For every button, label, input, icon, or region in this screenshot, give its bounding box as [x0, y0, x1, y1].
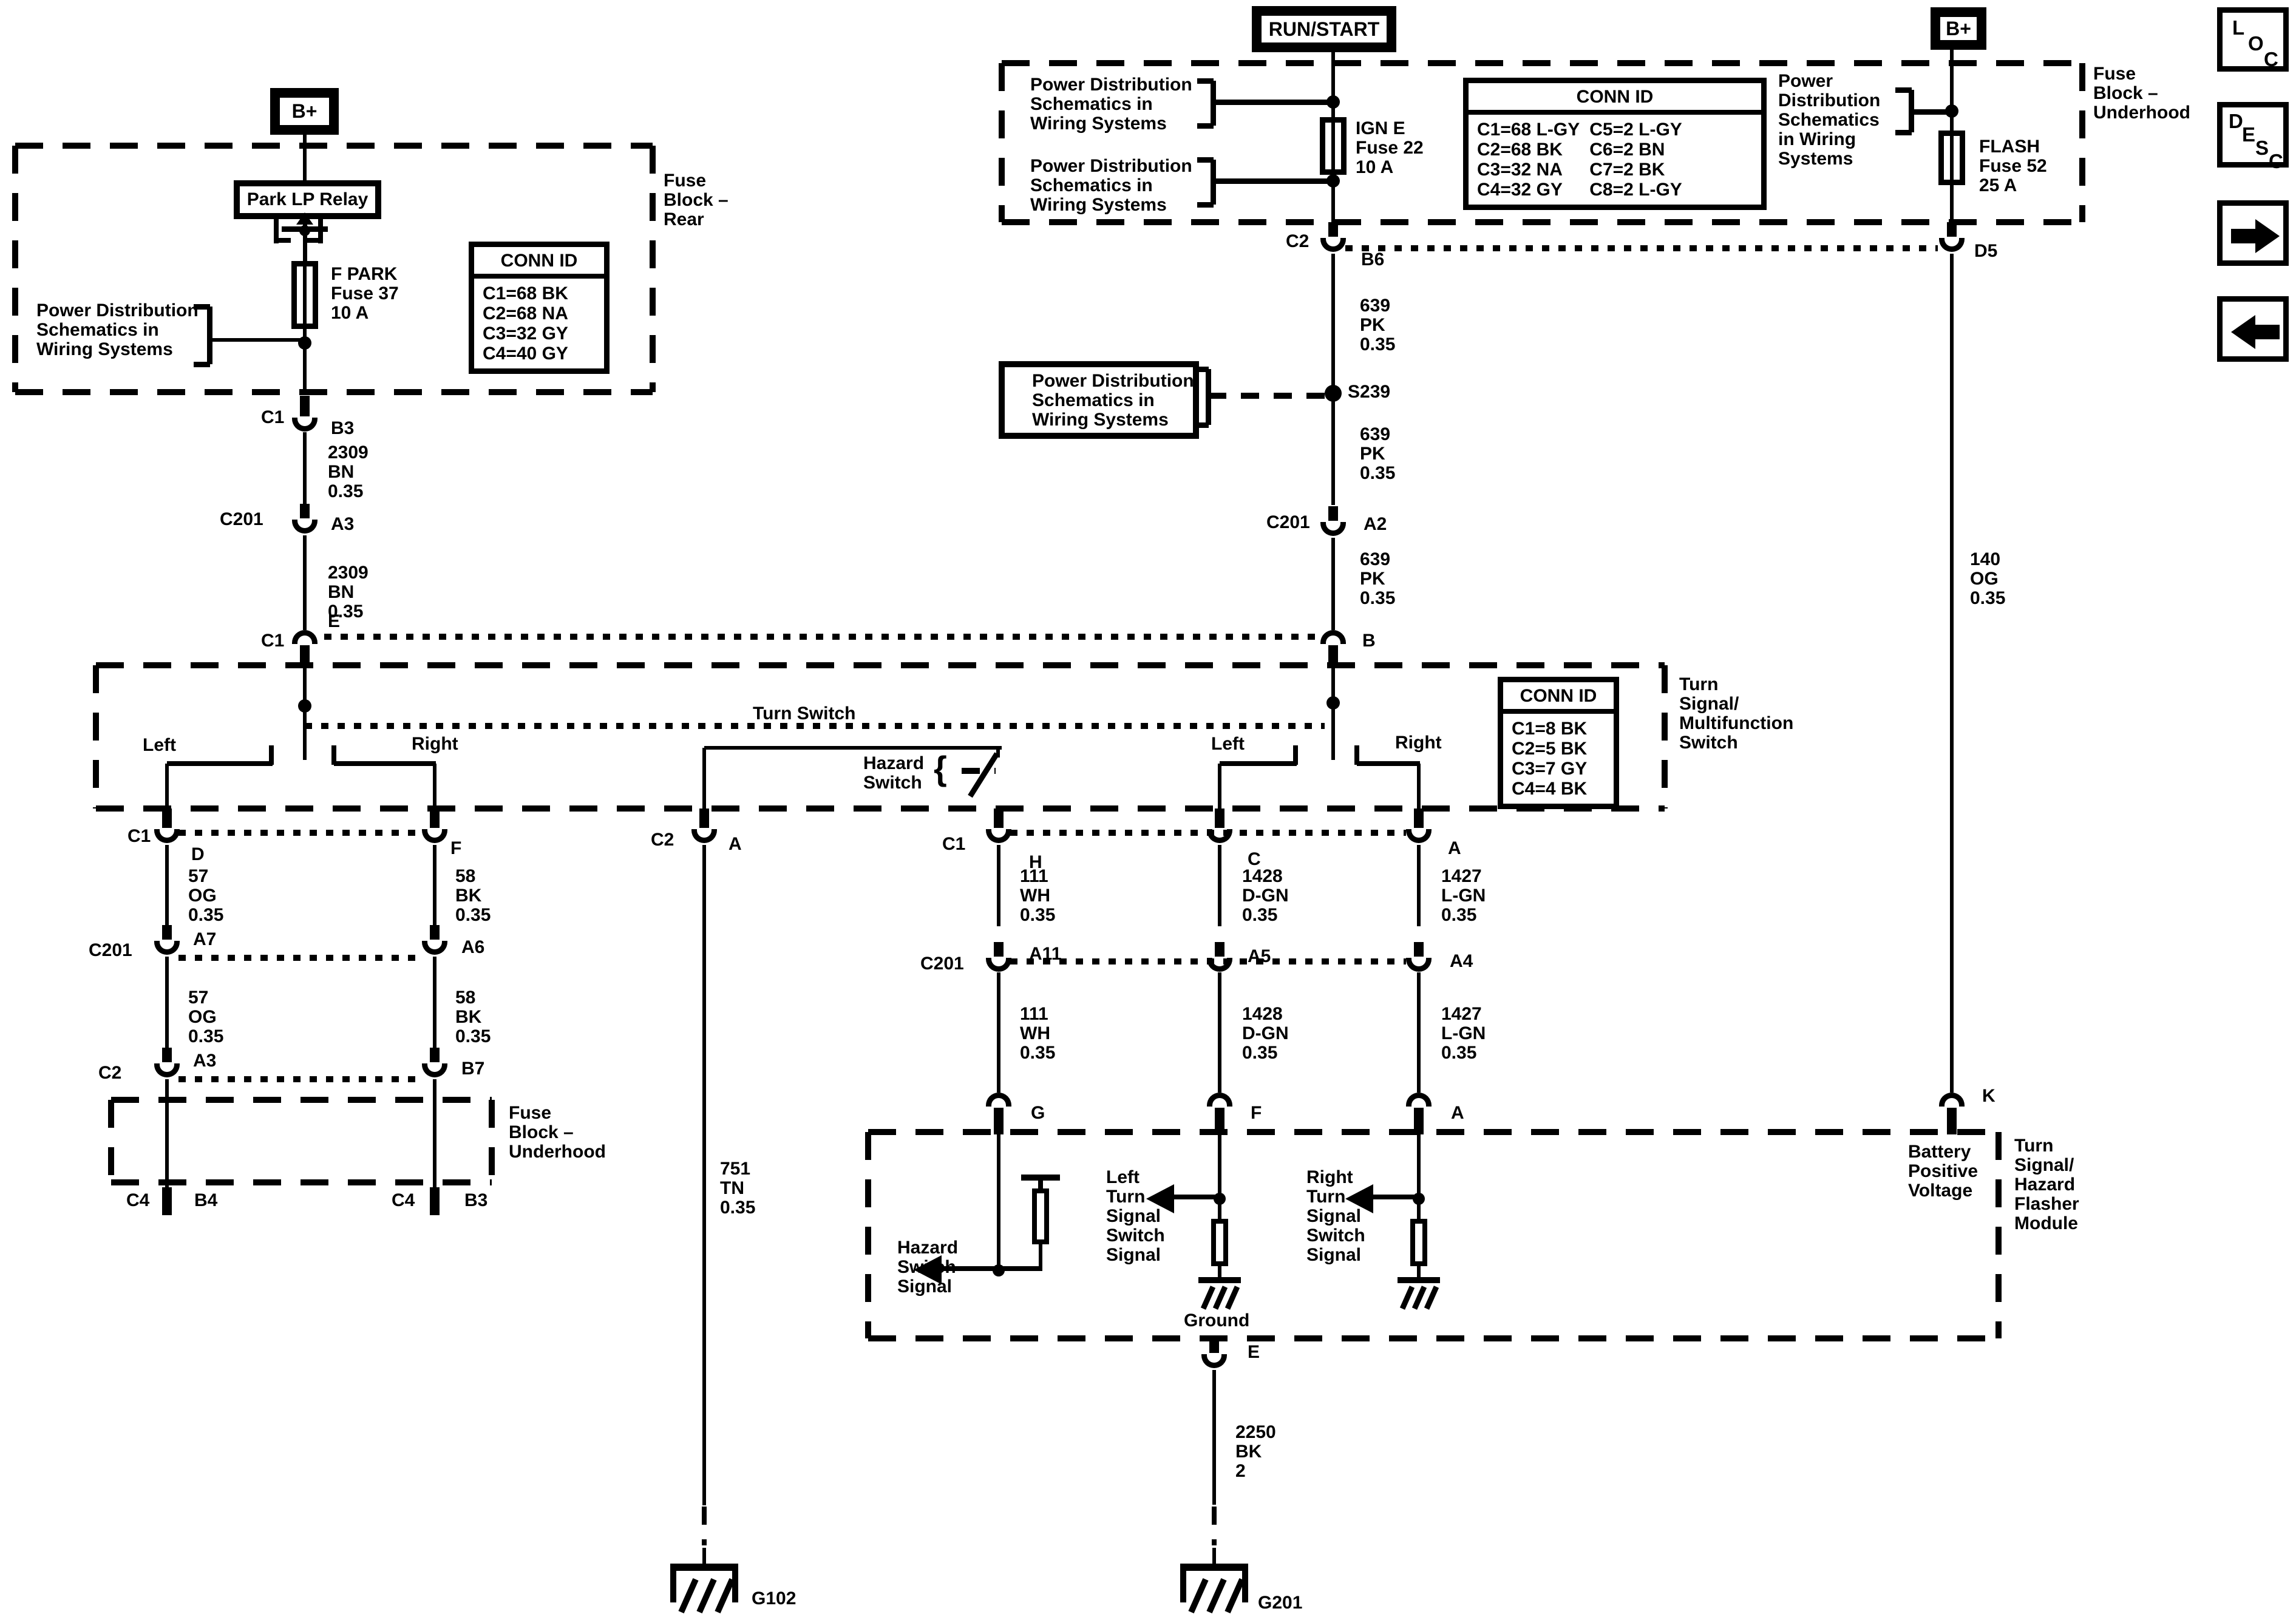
wire-111-wh-1-line-2: 0.35 [1020, 906, 1055, 925]
b-plus-terminal-underhood-label: B+ [1937, 13, 1980, 44]
connector-pin-stub [1414, 808, 1424, 828]
connector-pin-stub [1215, 808, 1224, 828]
wire-solid [303, 432, 307, 504]
pd-schematics-s239-line-0: Power Distribution [1032, 371, 1194, 391]
wire-solid [1197, 123, 1214, 129]
wire-140-og-line-0: 140 [1970, 550, 2005, 569]
right-turn-signal-switch-signal-label: RightTurnSignalSwitchSignal [1306, 1168, 1365, 1265]
wire-solid [1417, 972, 1421, 1093]
fuse-block-underhood-left-label-line-0: Fuse [509, 1103, 606, 1123]
wire-751-tn-line-1: TN [720, 1179, 755, 1198]
fuse-block-underhood-top-label: FuseBlock –Underhood [2093, 64, 2190, 123]
conn-c201-a2-left: C201 [1266, 513, 1310, 532]
signal-direction-arrow-icon [1345, 1184, 1373, 1213]
wire-58-bk-2: 58BK0.35 [455, 988, 491, 1046]
wire-58-bk-2-line-0: 58 [455, 988, 491, 1008]
connector-cup [292, 418, 318, 432]
connector-cup [1406, 829, 1432, 843]
fuse-block-underhood-left-label: FuseBlock –Underhood [509, 1103, 606, 1162]
wire-1428-dgn-1: 1428D-GN0.35 [1242, 867, 1289, 925]
fuse-block-rear-label-line-2: Rear [664, 210, 729, 229]
connector-dome [1939, 1093, 1965, 1107]
splice-s239: S239 [1348, 382, 1390, 402]
connector-pin-stub [994, 808, 1004, 828]
wire-solid [1218, 972, 1221, 1093]
fuse-block-underhood-left-label-line-1: Block – [509, 1123, 606, 1142]
wire-111-wh-2-line-1: WH [1020, 1024, 1055, 1043]
wire-1427-lgn-1-line-1: L-GN [1441, 886, 1486, 906]
conn-f-module: F [1251, 1103, 1262, 1123]
wire-751-tn-line-0: 751 [720, 1159, 755, 1179]
wire-2309-bn-2-line-1: BN [328, 583, 369, 602]
hazard-detent-symbol: { [934, 751, 947, 785]
wire-solid [1331, 538, 1335, 630]
turn-signal-hazard-flasher-module-label-line-2: Hazard [2014, 1175, 2079, 1195]
turn-signal-multifunction-switch-label-line-0: Turn [1679, 675, 1793, 694]
hazard-switch-label-line-1: Switch [863, 773, 924, 793]
wire-2309-bn-1-line-2: 0.35 [328, 482, 369, 501]
conn-id-table-fuse-block-underhood: CONN IDC1=68 L-GYC2=68 BKC3=32 NAC4=32 G… [1463, 78, 1767, 210]
wire-58-bk-1-line-2: 0.35 [455, 906, 491, 925]
wire-solid [165, 845, 169, 926]
conn-id-table-turn-switch: CONN IDC1=8 BKC2=5 BKC3=7 GYC4=4 BK [1498, 677, 1619, 809]
connector-pin-stub [300, 645, 310, 667]
conn-c1-d-right: D [191, 845, 205, 864]
wire-751-tn: 751TN0.35 [720, 1159, 755, 1218]
wire-solid [1331, 666, 1335, 760]
desc-button-letter: E [2242, 123, 2255, 146]
relay-pin-arrow-icon [296, 212, 313, 225]
connector-pin-stub [300, 504, 310, 518]
wire-57-og-1-line-1: OG [188, 886, 223, 906]
fuse-block-underhood-top-label-line-2: Underhood [2093, 103, 2190, 123]
wire-solid [433, 845, 436, 926]
ground-g201-label: G201 [1258, 1593, 1302, 1613]
conn-id-row: C4=40 GY [483, 344, 568, 364]
pd-schematics-rear-line-1: Schematics in [36, 320, 199, 340]
wire-break-dashed [1212, 1507, 1217, 1545]
flash-fuse-label: FLASHFuse 5225 A [1979, 137, 2047, 195]
conn-c: C [1248, 850, 1261, 869]
wire-solid [303, 535, 307, 630]
battery-positive-voltage-label-line-1: Positive [1908, 1162, 1978, 1181]
desc-button[interactable]: DESC [2217, 102, 2289, 168]
wire-solid [307, 238, 322, 243]
conn-id-row: C1=8 BK [1512, 719, 1587, 739]
connector-pin-stub [1328, 645, 1338, 667]
link-dotted [178, 1076, 424, 1082]
wire-end-stub [430, 1187, 440, 1215]
wire-solid [433, 1079, 436, 1188]
fuse-block-underhood-left-outline-top [111, 1097, 492, 1103]
pd-schematics-top-2: Power DistributionSchematics inWiring Sy… [1030, 157, 1192, 215]
conn-c201-a7-left: C201 [89, 941, 132, 960]
wire-2309-bn-1-line-0: 2309 [328, 443, 369, 463]
conn-id-row: C8=2 L-GY [1589, 180, 1682, 200]
wire-2309-bn-2-line-0: 2309 [328, 563, 369, 583]
wire-solid [997, 1134, 1000, 1271]
connector-pin-stub [994, 1108, 1004, 1134]
junction-dot [1325, 385, 1342, 402]
fuse-block-rear-outline-left [12, 146, 18, 392]
wire-solid [1417, 1134, 1421, 1220]
connector-cup [1201, 1354, 1227, 1368]
connector-pin-stub [300, 396, 310, 416]
wire-751-tn-line-2: 0.35 [720, 1198, 755, 1218]
wire-639-pk-2-line-1: PK [1360, 444, 1395, 464]
wire-end-stub [162, 1187, 172, 1215]
conn-c2-b6-left: C2 [1286, 232, 1309, 251]
pd-schematics-rear-line-2: Wiring Systems [36, 340, 199, 359]
flash-fuse-element [1950, 131, 1954, 185]
wire-solid [1197, 202, 1214, 208]
f-park-fuse-element [303, 261, 307, 329]
connector-cup [986, 958, 1011, 972]
hazard-switch-label-line-0: Hazard [863, 754, 924, 773]
pd-schematics-top-1: Power DistributionSchematics inWiring Sy… [1030, 75, 1192, 134]
left-turn-signal-switch-signal-label-line-3: Switch [1106, 1226, 1165, 1246]
fuse-block-underhood-top-label-line-1: Block – [2093, 84, 2190, 103]
junction-dot [1326, 174, 1340, 188]
desc-button-letter: C [2269, 150, 2283, 173]
conn-id-row: C6=2 BN [1589, 140, 1682, 160]
connector-pin-stub [1328, 506, 1338, 521]
turn-signal-hazard-flasher-module-outline-right [1995, 1132, 2002, 1338]
connector-cup [691, 829, 717, 843]
wire-solid [1331, 254, 1335, 505]
pd-schematics-s239: Power DistributionSchematics inWiring Sy… [1032, 371, 1194, 430]
connector-cup [292, 520, 318, 534]
wire-solid [276, 238, 291, 243]
conn-f: F [450, 839, 461, 858]
wire-solid [1213, 178, 1333, 184]
loc-button-letter: C [2264, 48, 2278, 71]
wire-solid [1213, 100, 1333, 105]
turn-signal-multifunction-switch-label: TurnSignal/MultifunctionSwitch [1679, 675, 1793, 753]
conn-a-switch: A [1448, 839, 1461, 858]
loc-button-letter: O [2248, 32, 2264, 55]
conn-c4-b3-right: B3 [464, 1191, 487, 1210]
wire-solid [1218, 845, 1221, 926]
link-dotted [324, 634, 1319, 640]
wire-solid [1950, 67, 1954, 132]
turn-signal-multifunction-switch-outline-top [96, 662, 1665, 668]
conn-c2-a3-right: A3 [193, 1051, 216, 1071]
f-park-fuse-label-line-2: 10 A [331, 303, 399, 323]
loc-button[interactable]: LOC [2217, 7, 2289, 72]
desc-button-letter: D [2229, 110, 2243, 133]
conn-id-row: C7=2 BK [1589, 160, 1682, 180]
wire-639-pk-1-line-0: 639 [1360, 296, 1395, 316]
conn-b: B [1362, 631, 1376, 651]
wire-solid [1895, 87, 1912, 93]
conn-id-row: C3=7 GY [1512, 759, 1587, 779]
wire-solid [194, 362, 210, 367]
wire-solid [1895, 130, 1912, 135]
pd-schematics-right-line-2: Schematics [1778, 110, 1880, 130]
wire-solid [1212, 1370, 1216, 1505]
wire-1428-dgn-2-line-1: D-GN [1242, 1024, 1289, 1043]
left-arrow-icon [2231, 315, 2280, 349]
ign-e-fuse-label-line-2: 10 A [1356, 158, 1424, 177]
connector-pin-stub [1215, 1108, 1224, 1134]
left-turn-signal-switch-signal-label: LeftTurnSignalSwitchSignal [1106, 1168, 1165, 1265]
left-turn-signal-switch-signal-label-line-4: Signal [1106, 1246, 1165, 1265]
wire-solid [702, 845, 706, 1505]
wire-1428-dgn-1-line-2: 0.35 [1242, 906, 1289, 925]
fuse-block-underhood-top-outline-bottom [1002, 219, 2082, 225]
wire-solid [1211, 81, 1216, 126]
pd-schematics-right-line-3: in Wiring [1778, 130, 1880, 149]
wire-639-pk-2-line-2: 0.35 [1360, 464, 1395, 483]
link-dotted [1345, 245, 1938, 251]
junction-dot [299, 225, 310, 236]
wire-solid [1417, 845, 1421, 926]
wire-1428-dgn-1-line-1: D-GN [1242, 886, 1289, 906]
conn-id-row: C2=68 NA [483, 303, 568, 324]
wire-solid [1417, 764, 1421, 811]
switch-right-label-1: Right [412, 734, 458, 754]
conn-c1-b3-left: C1 [261, 408, 284, 427]
wire-58-bk-1-line-0: 58 [455, 867, 491, 886]
connector-pin-stub [1947, 1108, 1957, 1134]
pd-schematics-right-line-1: Distribution [1778, 91, 1880, 110]
wire-1428-dgn-1-line-0: 1428 [1242, 867, 1289, 886]
wire-1427-lgn-1-line-0: 1427 [1441, 867, 1486, 886]
connector-cup [422, 1063, 447, 1077]
fuse-block-rear-label: FuseBlock –Rear [664, 171, 729, 229]
conn-id-table-fuse-block-underhood-col-0: C1=68 L-GYC2=68 BKC3=32 NAC4=32 GY [1472, 120, 1584, 200]
connector-pin-stub [162, 925, 172, 940]
wire-57-og-2: 57OG0.35 [188, 988, 223, 1046]
wire-solid [207, 307, 212, 364]
pd-schematics-rear-line-0: Power Distribution [36, 301, 199, 320]
connector-cup [154, 1063, 180, 1077]
connector-dome [986, 1093, 1011, 1107]
turn-signal-hazard-flasher-module-label-line-4: Module [2014, 1214, 2079, 1233]
pd-schematics-right-line-4: Systems [1778, 149, 1880, 169]
fuse-block-underhood-left-outline-bottom [111, 1179, 492, 1185]
pd-schematics-rear: Power DistributionSchematics inWiring Sy… [36, 301, 199, 359]
connector-pin-stub [1209, 1338, 1219, 1353]
conn-id-table-turn-switch-header: CONN ID [1503, 682, 1614, 714]
wire-111-wh-2-line-2: 0.35 [1020, 1043, 1055, 1063]
wire-solid [209, 338, 305, 342]
conn-c2-a-left: C2 [651, 830, 674, 850]
prev-page-button[interactable] [2217, 296, 2289, 362]
wire-2250-bk-line-2: 2 [1235, 1462, 1276, 1481]
wire-1427-lgn-1-line-2: 0.35 [1441, 906, 1486, 925]
wire-2309-bn-1: 2309BN0.35 [328, 443, 369, 501]
conn-a-module: A [1451, 1103, 1464, 1123]
connector-cup [422, 829, 447, 843]
turn-signal-hazard-flasher-module-label-line-1: Signal/ [2014, 1156, 2079, 1175]
turn-signal-multifunction-switch-label-line-3: Switch [1679, 733, 1793, 753]
wire-solid [1357, 761, 1420, 766]
fuse-block-underhood-top-outline-right [2079, 63, 2085, 222]
fuse-block-underhood-left-outline-left [108, 1100, 114, 1182]
pd-schematics-s239-line-1: Schematics in [1032, 391, 1194, 410]
loc-button-letter: L [2232, 16, 2244, 39]
right-arrow-icon [2231, 219, 2280, 253]
turn-signal-multifunction-switch-outline-right [1662, 665, 1668, 808]
conn-id-row: C1=68 L-GY [1477, 120, 1580, 140]
wire-1427-lgn-1: 1427L-GN0.35 [1441, 867, 1486, 925]
conn-g: G [1031, 1103, 1045, 1123]
turn-signal-multifunction-switch-outline-bottom [96, 805, 1665, 812]
junction-dot [1326, 95, 1340, 109]
junction-dot [1413, 1193, 1425, 1205]
conn-c1-b3-right: B3 [331, 419, 354, 438]
wire-58-bk-1: 58BK0.35 [455, 867, 491, 925]
wire-58-bk-2-line-2: 0.35 [455, 1027, 491, 1046]
fuse-block-underhood-top-outline-left [999, 63, 1005, 222]
connector-pin-stub [162, 1048, 172, 1062]
wire-break-dashed [702, 1507, 707, 1545]
conn-id-table-fuse-block-underhood-col-1: C5=2 L-GYC6=2 BNC7=2 BKC8=2 L-GY [1584, 120, 1687, 200]
conn-a6: A6 [461, 938, 484, 957]
fuse-block-rear-label-line-0: Fuse [664, 171, 729, 191]
wire-solid [1211, 160, 1216, 205]
conn-id-row: C2=5 BK [1512, 739, 1587, 759]
battery-positive-voltage-label-line-2: Voltage [1908, 1181, 1978, 1201]
conn-id-table-fuse-block-underhood-header: CONN ID [1469, 83, 1761, 115]
wire-solid [997, 972, 1000, 1093]
conn-c4-b3-left: C4 [392, 1191, 415, 1210]
hazard-switch-label: HazardSwitch [863, 754, 924, 793]
f-park-fuse-label: F PARKFuse 3710 A [331, 265, 399, 323]
wire-1427-lgn-2-line-0: 1427 [1441, 1005, 1486, 1024]
pd-schematics-top-2-line-1: Schematics in [1030, 176, 1192, 195]
ign-e-fuse-element [1331, 117, 1335, 175]
link-dotted [178, 830, 424, 836]
ign-e-fuse-label-line-1: Fuse 22 [1356, 138, 1424, 158]
wire-639-pk-3-line-2: 0.35 [1360, 589, 1395, 608]
wire-140-og: 140OG0.35 [1970, 550, 2005, 608]
conn-id-table-fuse-block-rear-col-0: C1=68 BKC2=68 NAC3=32 GYC4=40 GY [478, 283, 573, 364]
link-dotted [305, 723, 1325, 729]
connector-cup [986, 829, 1011, 843]
wire-solid [303, 666, 307, 760]
wire-111-wh-1-line-1: WH [1020, 886, 1055, 906]
connector-pin-stub [699, 808, 709, 828]
connector-cup [1939, 238, 1965, 252]
wire-solid [165, 764, 169, 810]
wire-solid [702, 748, 706, 810]
pd-schematics-top-2-line-0: Power Distribution [1030, 157, 1192, 176]
conn-a5: A5 [1248, 947, 1271, 966]
wire-57-og-1: 57OG0.35 [188, 867, 223, 925]
fuse-block-rear-outline-right [650, 146, 656, 392]
connector-cup [1320, 522, 1346, 536]
run-start-terminal-label: RUN/START [1258, 12, 1390, 46]
wire-solid [334, 761, 436, 766]
next-page-button[interactable] [2217, 200, 2289, 266]
ign-e-fuse-label-line-0: IGN E [1356, 119, 1424, 138]
wire-1427-lgn-2: 1427L-GN0.35 [1441, 1005, 1486, 1063]
connector-cup [1207, 958, 1232, 972]
fuse-block-rear-label-line-1: Block – [664, 191, 729, 210]
turn-signal-hazard-flasher-module-label-line-0: Turn [2014, 1136, 2079, 1156]
conn-c4-b4-left: C4 [126, 1191, 149, 1210]
turn-signal-multifunction-switch-label-line-1: Signal/ [1679, 694, 1793, 714]
pd-schematics-s239-line-2: Wiring Systems [1032, 410, 1194, 430]
right-turn-resistor [1410, 1219, 1427, 1266]
conn-c201-a3-left: C201 [220, 510, 263, 529]
conn-c201-a3-right: A3 [331, 515, 354, 534]
wire-57-og-1-line-2: 0.35 [188, 906, 223, 925]
wire-639-pk-1-line-2: 0.35 [1360, 335, 1395, 354]
wire-58-bk-1-line-1: BK [455, 886, 491, 906]
switch-right-label-2: Right [1395, 733, 1442, 753]
wire-solid [702, 1548, 706, 1565]
fuse-block-rear-outline-top [15, 143, 653, 149]
ign-e-fuse-label: IGN EFuse 2210 A [1356, 119, 1424, 177]
wire-2309-bn-1-line-1: BN [328, 463, 369, 482]
connector-pin-stub [1947, 222, 1957, 237]
wire-solid [167, 761, 273, 766]
connector-cup [154, 941, 180, 955]
wire-111-wh-2: 111WH0.35 [1020, 1005, 1055, 1063]
junction-dot [298, 699, 311, 713]
run-start-terminal: RUN/START [1252, 6, 1396, 52]
switch-left-label-2: Left [1211, 734, 1245, 754]
pd-schematics-top-2-line-2: Wiring Systems [1030, 195, 1192, 215]
wire-1427-lgn-2-line-2: 0.35 [1441, 1043, 1486, 1063]
flash-fuse-label-line-0: FLASH [1979, 137, 2047, 157]
b-plus-terminal-rear: B+ [270, 88, 339, 135]
wire-solid [1909, 90, 1914, 132]
wire-1427-lgn-2-line-1: L-GN [1441, 1024, 1486, 1043]
conn-id-row: C5=2 L-GY [1589, 120, 1682, 140]
left-turn-resistor [1211, 1219, 1228, 1266]
wire-solid [433, 764, 436, 810]
wire-solid [997, 845, 1000, 926]
connector-dome [1207, 1093, 1232, 1107]
wire-solid [704, 746, 1002, 750]
wire-solid [1197, 78, 1214, 84]
connector-dome [1406, 1093, 1432, 1107]
fuse-block-underhood-top-outline-top [1002, 60, 2082, 66]
conn-id-table-fuse-block-rear: CONN IDC1=68 BKC2=68 NAC3=32 GYC4=40 GY [469, 242, 610, 374]
wire-1428-dgn-2-line-0: 1428 [1242, 1005, 1289, 1024]
wire-solid [433, 957, 436, 1048]
turn-signal-hazard-flasher-module-label: TurnSignal/HazardFlasherModule [2014, 1136, 2079, 1233]
conn-c1-e-left: C1 [261, 631, 284, 651]
conn-b7: B7 [461, 1059, 484, 1079]
connector-pin-stub [430, 925, 440, 940]
wire-solid [1197, 157, 1214, 163]
link-dotted [178, 955, 424, 961]
wire-solid [1331, 63, 1335, 118]
junction-dot [993, 1264, 1005, 1276]
battery-positive-voltage-label: BatteryPositiveVoltage [1908, 1142, 1978, 1201]
right-turn-signal-switch-signal-label-line-4: Signal [1306, 1246, 1365, 1265]
conn-c2-a3-left: C2 [98, 1063, 121, 1083]
conn-id-row: C4=32 GY [1477, 180, 1580, 200]
wire-639-pk-3-line-0: 639 [1360, 550, 1395, 569]
fuse-block-underhood-left-outline-right [489, 1100, 495, 1182]
conn-c1-h-right: H [1029, 853, 1042, 872]
wire-111-wh-2-line-0: 111 [1020, 1005, 1055, 1024]
conn-c4-b4-right: B4 [194, 1191, 217, 1210]
turn-signal-hazard-flasher-module-outline-top [868, 1129, 1999, 1135]
conn-c1-e-right: E [328, 612, 340, 631]
wire-111-wh-1: 111WH0.35 [1020, 867, 1055, 925]
turn-signal-hazard-flasher-module-label-line-3: Flasher [2014, 1195, 2079, 1214]
wire-solid [1950, 184, 1954, 223]
conn-c201-a7-right: A7 [193, 930, 216, 949]
